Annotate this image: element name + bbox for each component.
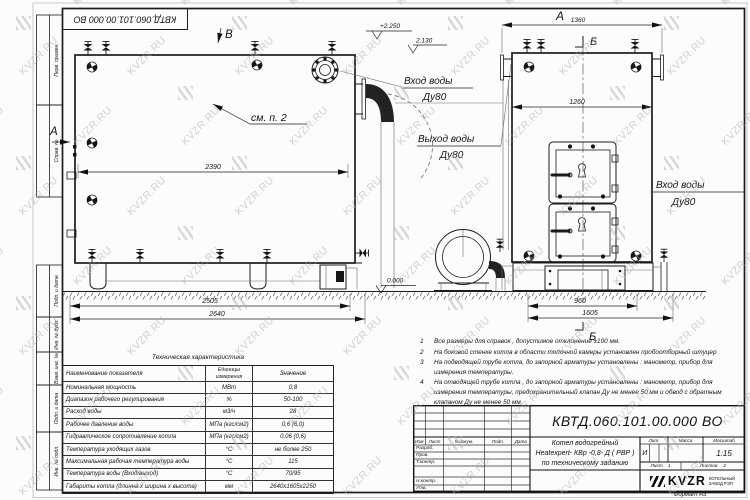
view-b-label: В	[225, 29, 233, 41]
company-short: KVZR	[668, 474, 706, 488]
tt-cell: МВт	[206, 381, 253, 393]
tt-cell: Гидравлическое сопротивление котла	[63, 431, 206, 443]
boiler-side-view: 2390 см. п. 2 В А +2.250 2.130 0.000 Вхо…	[49, 23, 511, 324]
side-base-frame	[82, 263, 362, 289]
sheet-cell: Лист 1	[640, 462, 681, 470]
col-doc: N докум.	[444, 437, 485, 445]
product-name-line: по техническому заданию	[542, 459, 629, 469]
lower-furnace-door	[549, 204, 618, 262]
tt-cell: 0,6 (6,0)	[253, 418, 333, 430]
see-item-note: см. п. 2	[251, 112, 287, 124]
elev-0: 0.000	[387, 278, 404, 285]
inlet-water-2-dn: Ду80	[671, 197, 696, 208]
tt-cell: Расход воды	[63, 406, 206, 418]
dim-2640: 2640	[208, 311, 225, 318]
fan-blower	[434, 80, 509, 291]
tt-cell: Температура воды (Вход/выход)	[63, 468, 206, 480]
ground-line	[62, 292, 706, 300]
tech-table-title: Техническая характеристика	[62, 354, 334, 365]
dim-2390: 2390	[204, 164, 221, 171]
note-item: 2На боковой стенке котла в области топоч…	[420, 348, 740, 358]
note-number: 3	[420, 358, 434, 377]
tech-col-name: Наименование показателя	[63, 366, 206, 381]
tt-cell: Температура уходящих газов	[63, 443, 206, 455]
lit-label: Лит.	[640, 437, 668, 444]
tt-cell: 0,06 (0,6)	[253, 431, 333, 443]
front-view-label: А	[555, 9, 564, 23]
tt-cell: 28	[253, 406, 333, 418]
flue-elbow	[355, 79, 503, 288]
sheets-cell: Листов 2	[681, 462, 745, 470]
role-prov: Пров.	[414, 452, 443, 459]
product-name: Котел водогрейный Heatexpert- КВр -0,8- …	[530, 438, 640, 469]
scale-value: 1:15	[703, 444, 745, 462]
margin-stamps: Перв. примен. Справ. № Подп. и дата Инв.…	[37, 15, 63, 490]
mass-label: Масса	[668, 437, 703, 444]
sheets-label: Листов	[700, 464, 717, 469]
tech-col-value: Значение	[253, 366, 333, 381]
tt-cell: МПа (кгс/см2)	[206, 431, 253, 443]
note-text: На подводящей трубе котла, до запорной а…	[434, 358, 740, 377]
margin-label: Инв. № дубл.	[54, 319, 60, 350]
col-izm: Изм	[413, 437, 426, 445]
margin-label: Подп. и дата	[54, 393, 60, 425]
tt-cell: °С	[206, 455, 253, 467]
dim-1260: 1260	[569, 99, 585, 106]
margin-label: Взам. инв. №	[54, 352, 60, 384]
drawing-sheet: Перв. примен. Справ. № Подп. и дата Инв.…	[0, 0, 750, 500]
tt-cell: Диапазон рабочего регулирования	[63, 393, 206, 405]
note-text: Все размеры для справок , допустимое отк…	[434, 337, 740, 347]
title-block: Изм Лист N докум. Подп. Дата Разраб. Про…	[413, 405, 745, 492]
notes-list: 1Все размеры для справок , допустимое от…	[420, 337, 740, 408]
top-stamp-number: КВТД.060.101.00.000 ВО	[74, 15, 177, 25]
note-number: 1	[420, 337, 434, 347]
note-text: На боковой стенке котла в области топочн…	[434, 348, 740, 358]
margin-label: Справ. №	[54, 139, 60, 162]
tt-cell: 70/95	[253, 468, 333, 480]
upper-furnace-door	[549, 142, 618, 203]
col-date: Дата	[512, 437, 531, 445]
sheet-label: Лист	[650, 464, 662, 469]
tt-cell: %	[206, 393, 253, 405]
tt-cell: 2640х1605х2250	[253, 480, 333, 492]
front-base-frame	[502, 263, 653, 291]
note-item: 4На отводящей трубе котла , до запорной …	[420, 378, 740, 407]
tt-cell: мм	[206, 480, 253, 492]
kvzr-bars-icon	[650, 476, 665, 487]
dim-1360: 1360	[571, 17, 586, 24]
tt-cell: °С	[206, 443, 253, 455]
tech-col-units: Единицы измерения	[206, 366, 253, 381]
product-name-line: Heatexpert- КВр -0,8- Д ( РВР )	[536, 449, 635, 459]
tt-cell: Номинальная мощность	[63, 381, 206, 393]
role-tkontr: Т.контр.	[414, 459, 443, 466]
top-stamp: КВТД.060.101.00.000 ВО	[63, 9, 188, 30]
inlet-water-dn: Ду80	[422, 92, 447, 103]
tt-cell: 0,8	[253, 381, 333, 393]
dim-1605: 1605	[582, 310, 598, 317]
sheets-num: 2	[723, 464, 726, 469]
outlet-water-dn: Ду80	[439, 150, 464, 161]
company-name: КОТЕЛЬНЫЙ ЗАВОД РЭП	[709, 476, 735, 486]
sheet-num: 1	[668, 464, 671, 469]
format-note: Формат А3	[630, 492, 750, 500]
company-name-line: ЗАВОД РЭП	[709, 481, 735, 486]
outlet-water-label: Выход воды	[418, 134, 475, 145]
note-item: 1Все размеры для справок , допустимое от…	[420, 337, 740, 347]
company-logo: KVZR КОТЕЛЬНЫЙ ЗАВОД РЭП	[640, 470, 745, 492]
tt-cell: Рабочее давление воды	[63, 418, 206, 430]
margin-label: Инв. № подл.	[54, 445, 60, 476]
tt-cell: Максимальная рабочая температура воды	[63, 455, 206, 467]
margin-label: Подп. и дата	[54, 275, 60, 307]
tt-cell: м3/ч	[206, 406, 253, 418]
tt-cell: МПа (кгс/см2)	[206, 418, 253, 430]
elev-2250: +2.250	[380, 23, 400, 30]
elev-2130: 2.130	[415, 38, 433, 45]
note-item: 3На подводящей трубе котла, до запорной …	[420, 358, 740, 377]
margin-label: Перв. примен.	[54, 43, 60, 76]
inlet-water-2-label: Вход воды	[656, 180, 705, 191]
tt-cell: °С	[206, 468, 253, 480]
note-number: 2	[420, 348, 434, 358]
col-sign: Подп.	[485, 437, 512, 445]
tt-cell: 50-100	[253, 393, 333, 405]
note-text: На отводящей трубе котла , до запорной а…	[434, 378, 740, 407]
tech-table: Техническая характеристика Наименование …	[62, 354, 334, 494]
view-a-label: А	[49, 126, 58, 138]
role-nkontr: Н.контр.	[414, 477, 443, 485]
product-name-line: Котел водогрейный	[552, 439, 619, 449]
tech-table-grid: Наименование показателя Единицы измерени…	[62, 365, 334, 494]
role-utv: Утв.	[414, 485, 443, 492]
tt-cell: Габариты котла (длинна х ширина х высота…	[63, 480, 206, 492]
tt-cell: не более 250	[253, 443, 333, 455]
scale-label: Масштаб	[703, 437, 745, 444]
col-list: Лист	[426, 437, 444, 445]
flange-top-icon	[312, 57, 338, 83]
doc-number: КВТД.060.101.00.000 ВО	[530, 405, 745, 437]
note-number: 4	[420, 378, 434, 407]
section-b-top: Б	[590, 36, 597, 48]
inlet-water-label: Вход воды	[404, 76, 453, 87]
lit-value: И	[640, 444, 650, 462]
role-razrab: Разраб.	[414, 445, 443, 452]
tt-cell: 115	[253, 455, 333, 467]
